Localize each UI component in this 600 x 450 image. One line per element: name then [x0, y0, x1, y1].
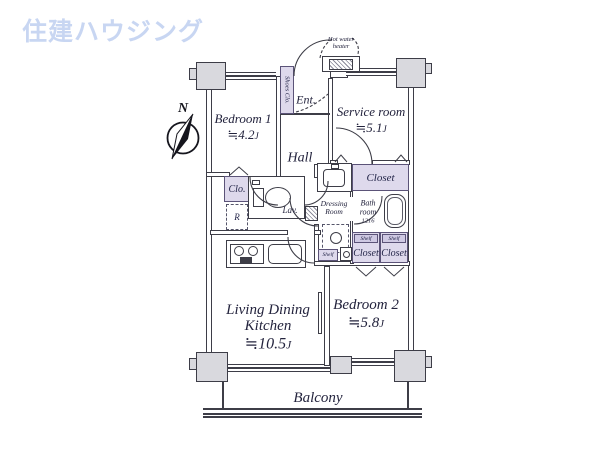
entrance-label: Ent.	[296, 94, 316, 107]
kitchen-sink-icon	[268, 244, 302, 264]
pillar	[196, 352, 228, 382]
pillar	[394, 350, 426, 382]
shelf-label: Shelf	[389, 236, 400, 242]
sliding-door	[318, 292, 322, 334]
balcony-divider	[222, 382, 224, 408]
washbasin-icon	[323, 169, 345, 187]
faucet-icon	[331, 164, 339, 169]
pipe-space	[305, 206, 318, 221]
pillar	[189, 358, 197, 370]
toilet-paper-holder-icon	[252, 180, 260, 185]
service-room-label: Service room	[337, 105, 405, 119]
burner-icon	[234, 246, 244, 256]
shelf-label: Shelf	[361, 236, 372, 242]
window	[228, 364, 338, 372]
balcony-divider	[407, 382, 409, 408]
hall-label: Hall	[288, 150, 313, 165]
closet-label: Clo.	[229, 184, 246, 195]
floor-plan-page: { "logo": { "text": "住建ハウジング" }, "compas…	[0, 0, 600, 450]
hot-water-heater-meter	[329, 59, 353, 70]
toilet-tank-icon	[253, 188, 264, 207]
bedroom2-area: ≒5.8J	[348, 315, 384, 331]
door-swing-arcs	[0, 0, 600, 450]
compass-north-label: N	[177, 101, 189, 116]
washer-drum-icon	[330, 232, 342, 244]
closet-bedroom1: Clo.	[224, 176, 250, 202]
bathroom-label: Bath room	[360, 199, 377, 216]
bedroom2-label: Bedroom 2	[333, 297, 399, 313]
window	[226, 72, 276, 80]
service-room-area: ≒5.1J	[355, 121, 386, 135]
balcony-rail	[203, 413, 422, 415]
refrigerator-space: R	[226, 204, 248, 230]
closet-label: Closet	[381, 248, 407, 259]
bedroom1-area: ≒4.2J	[227, 128, 258, 142]
shelf-bedroom2-right: Shelf	[382, 234, 406, 243]
bedroom1-label: Bedroom 1	[215, 112, 272, 126]
wall-segment	[328, 78, 333, 164]
hot-water-heater-label: Hot water heater	[328, 36, 354, 50]
closet-service-room: Closet	[352, 164, 409, 191]
burner-icon	[248, 246, 258, 256]
wall-segment	[314, 230, 321, 235]
balcony-rail	[203, 408, 422, 410]
bathroom-size-label: 1216	[362, 217, 375, 224]
pillar	[396, 58, 426, 88]
bathtub-inner-icon	[387, 197, 403, 225]
wall-segment	[210, 230, 288, 235]
water-heater-dial-icon	[343, 251, 350, 258]
brand-logo: 住建ハウジング	[22, 12, 204, 48]
pillar	[425, 356, 432, 368]
bath-door-gap	[350, 197, 354, 221]
shelf-bedroom2-left: Shelf	[354, 234, 378, 243]
pillar	[425, 63, 432, 74]
balcony-rail	[203, 416, 422, 418]
closet-label: Closet	[366, 172, 394, 184]
balcony-label: Balcony	[293, 390, 342, 406]
shoes-closet-label: Shoes Clo.	[284, 76, 291, 104]
pillar	[330, 356, 352, 374]
ldk-area: ≒10.5J	[245, 335, 292, 352]
shoes-closet: Shoes Clo.	[280, 66, 294, 114]
refrigerator-label: R	[234, 212, 240, 222]
dressing-room-label: Dressing Room	[321, 200, 348, 216]
shelf-label: Shelf	[323, 252, 334, 258]
ldk-label: Living Dining Kitchen	[226, 302, 310, 334]
wall-segment	[206, 88, 212, 354]
shelf-dressing: Shelf	[318, 249, 338, 261]
lavatory-label: Lav.	[282, 206, 297, 216]
window	[352, 358, 394, 366]
closet-label: Closet	[353, 248, 379, 259]
pillar	[196, 62, 226, 90]
grill-icon	[240, 257, 252, 263]
wall-segment	[324, 266, 330, 366]
pillar	[189, 68, 197, 80]
